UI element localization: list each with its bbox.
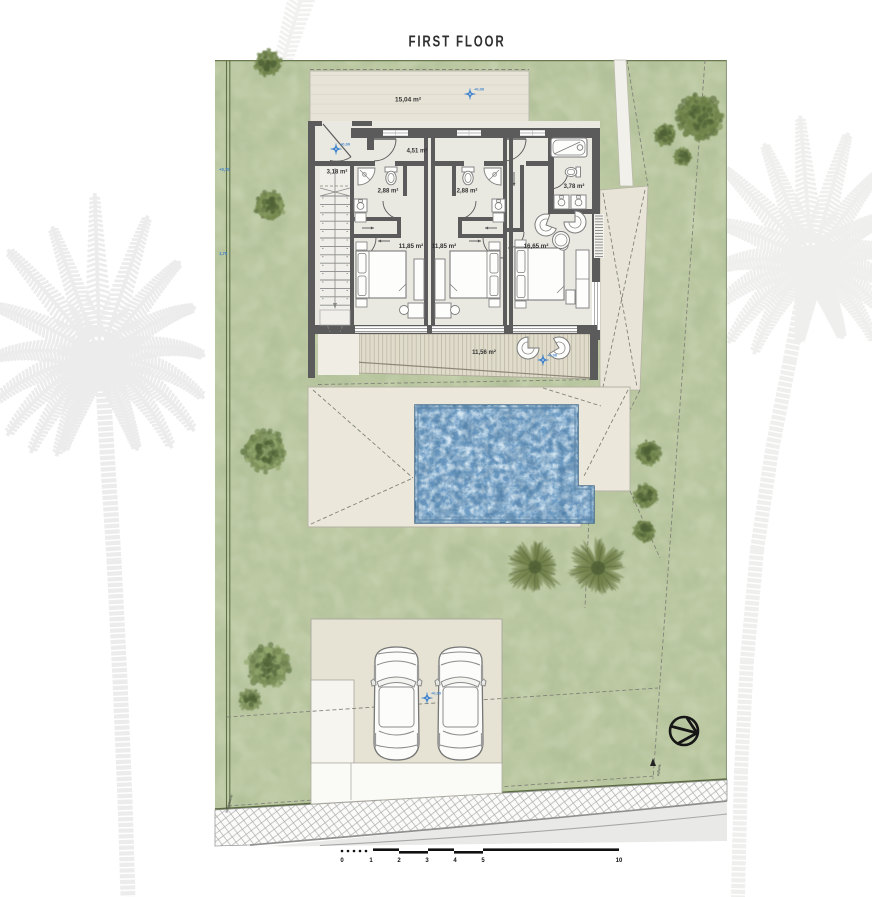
svg-text:+0,00: +0,00: [340, 142, 351, 147]
svg-text:11,56 m²: 11,56 m²: [472, 349, 496, 356]
svg-text:2,88 m²: 2,88 m²: [457, 188, 478, 195]
svg-text:15,04 m²: 15,04 m²: [395, 97, 422, 104]
svg-text:11,85 m²: 11,85 m²: [399, 243, 423, 250]
svg-text:11,85 m²: 11,85 m²: [432, 243, 456, 250]
svg-text:10: 10: [616, 858, 623, 864]
svg-text:2,88 m²: 2,88 m²: [378, 188, 399, 195]
svg-text:16,65 m²: 16,65 m²: [524, 243, 549, 250]
svg-text:3,78 m²: 3,78 m²: [564, 183, 585, 190]
svg-text:+0,00: +0,00: [474, 87, 485, 92]
svg-text:+0,00: +0,00: [431, 691, 442, 696]
svg-text:3,18 m²: 3,18 m²: [327, 169, 348, 176]
svg-text:4,51 m²: 4,51 m²: [407, 148, 428, 155]
svg-text:FIRST FLOOR: FIRST FLOOR: [409, 34, 506, 51]
svg-text:1,70: 1,70: [219, 251, 228, 256]
svg-text:+0,70: +0,70: [219, 167, 230, 172]
svg-text:+0,00: +0,00: [547, 353, 558, 358]
